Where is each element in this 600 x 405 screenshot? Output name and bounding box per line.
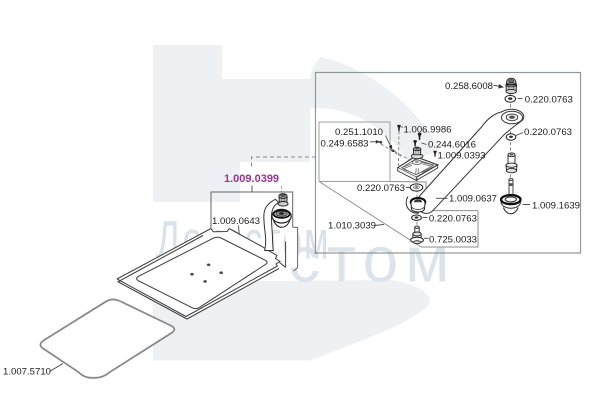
svg-text:0.244.6016: 0.244.6016 (428, 140, 476, 151)
svg-text:0.220.0763: 0.220.0763 (357, 183, 405, 194)
svg-text:1.009.0637: 1.009.0637 (449, 194, 497, 205)
svg-text:1.006.9986: 1.006.9986 (404, 125, 452, 136)
svg-text:1.009.0643: 1.009.0643 (212, 216, 260, 227)
svg-text:0.220.0763: 0.220.0763 (429, 213, 477, 224)
svg-text:1.009.0393: 1.009.0393 (438, 151, 486, 162)
svg-text:0.220.0763: 0.220.0763 (524, 127, 572, 138)
svg-text:1.009.1639: 1.009.1639 (532, 200, 580, 211)
svg-text:0.220.0763: 0.220.0763 (525, 95, 573, 106)
svg-text:1.009.0399: 1.009.0399 (224, 173, 279, 185)
svg-text:1.007.5710: 1.007.5710 (3, 367, 51, 378)
svg-text:1.010.3039: 1.010.3039 (328, 221, 376, 232)
svg-text:0.725.0033: 0.725.0033 (429, 235, 477, 246)
svg-text:0.258.6008: 0.258.6008 (445, 81, 493, 92)
svg-text:0.251.1010: 0.251.1010 (335, 127, 383, 138)
svg-text:0.249.6583: 0.249.6583 (321, 139, 369, 150)
